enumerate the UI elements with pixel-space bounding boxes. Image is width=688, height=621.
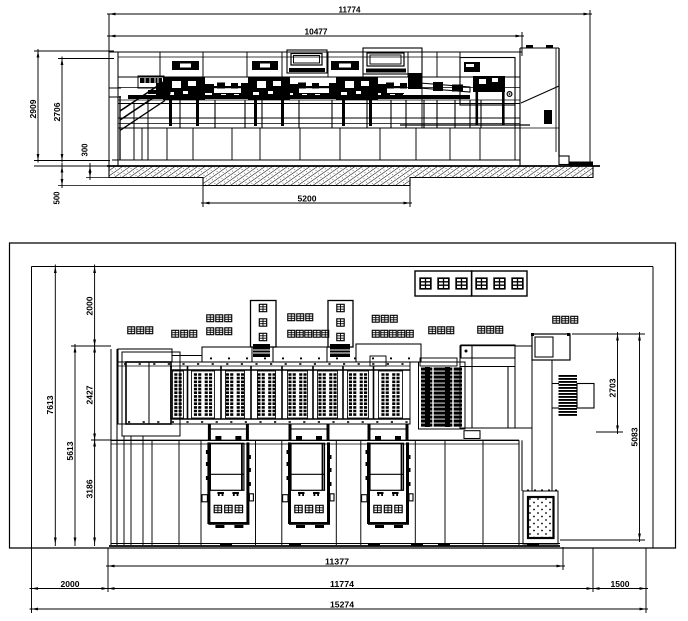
svg-text:15274: 15274 [330,599,354,609]
svg-text:500: 500 [52,191,62,204]
svg-text:11774: 11774 [339,4,361,14]
svg-text:7613: 7613 [45,395,55,414]
svg-text:2000: 2000 [61,579,80,589]
svg-text:5613: 5613 [65,441,75,460]
svg-text:5200: 5200 [298,193,317,203]
svg-text:2703: 2703 [607,378,617,397]
svg-text:1500: 1500 [611,579,630,589]
svg-text:5083: 5083 [629,427,639,446]
svg-text:2706: 2706 [52,102,62,121]
svg-text:3186: 3186 [84,479,94,498]
svg-text:10477: 10477 [305,26,328,36]
svg-text:2000: 2000 [84,296,94,315]
svg-text:11377: 11377 [325,556,349,566]
svg-text:2427: 2427 [84,385,94,404]
svg-text:2909: 2909 [28,99,38,118]
svg-text:11774: 11774 [330,579,354,589]
svg-text:300: 300 [80,143,90,156]
